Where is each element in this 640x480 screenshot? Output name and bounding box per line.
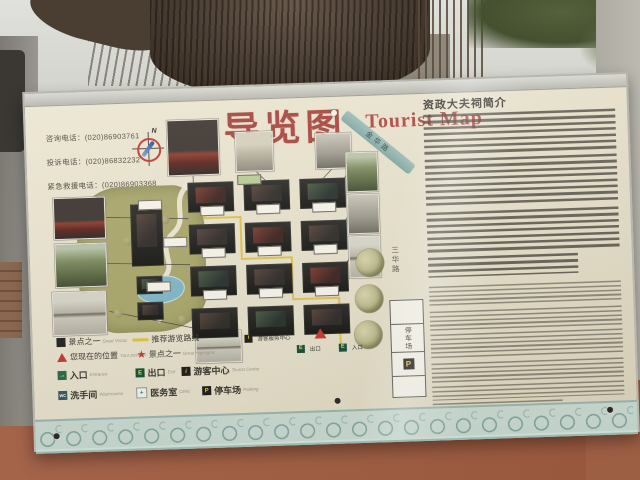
map-label-chip: [138, 200, 162, 211]
legend-tourist-center: i 游客中心Tourist Center: [181, 362, 260, 378]
entrance-icon: E: [339, 344, 347, 352]
info-icon: i: [181, 367, 190, 376]
route-line-icon: [132, 338, 148, 342]
map-label-chip: [259, 288, 283, 299]
road-sanhua-label: 三华路: [390, 246, 402, 275]
photo-inset: [236, 132, 273, 171]
map-exit-label: E 出口: [297, 344, 321, 353]
exit-icon: E: [297, 345, 305, 353]
photo-inset: [346, 152, 377, 191]
photo-inset: [54, 197, 105, 239]
map-label-chip: [256, 204, 280, 215]
tourist-map-sign: 导览图 Tourist Map 咨询电话：(020)86903761 投诉电话：…: [22, 72, 640, 452]
you-are-here-marker: [314, 328, 326, 338]
visitor-center-label: i 游客服务中心: [244, 333, 290, 343]
map-label-chip: [163, 237, 187, 248]
parking-lot-label: 停车场: [391, 324, 424, 353]
legend-exit: E 出口Exit: [135, 365, 175, 379]
legend-clinic: + 医务室Clinic: [136, 385, 190, 400]
legend-entrance: → 入口Entrance: [57, 367, 107, 382]
map-building-block: [137, 302, 164, 321]
parking-cell: [390, 300, 423, 325]
map-label-chip: [147, 281, 171, 292]
left-dark-post: [0, 50, 25, 152]
map-label-chip: [257, 246, 281, 257]
photo-scene: 导览图 Tourist Map 咨询电话：(020)86903761 投诉电话：…: [0, 0, 640, 480]
exit-icon: E: [135, 368, 144, 377]
photo-inset: [316, 133, 351, 168]
map-label-chip: [203, 289, 227, 300]
legend-route: 推荐游览路线: [132, 332, 199, 345]
intro-chinese-text: [423, 108, 620, 282]
parking-icon: P: [202, 386, 211, 395]
legend-parking: P 停车场Parking: [202, 382, 259, 397]
map-label-chip: [200, 206, 224, 217]
parking-cell: P: [392, 352, 425, 377]
map-label-chip: [201, 247, 225, 258]
photo-inset: [348, 194, 379, 233]
left-brick-patch: [0, 262, 22, 338]
photo-inset: [167, 120, 219, 176]
clinic-cross-icon: +: [136, 387, 147, 398]
map-building-block: [130, 204, 164, 267]
attraction-square-icon: [56, 338, 65, 347]
legend-attraction: 景点之一Great Vistas: [56, 335, 127, 348]
parking-strip: 停车场 P: [389, 299, 426, 398]
info-icon: i: [244, 335, 252, 343]
photo-inset: [55, 243, 106, 287]
star-icon: ★: [137, 350, 146, 359]
photo-inset: [53, 292, 106, 336]
parking-cell: [393, 376, 426, 395]
entrance-icon: →: [57, 371, 66, 380]
washroom-icon: WC: [58, 391, 67, 400]
map-building-block: [303, 303, 350, 335]
mounting-bolt: [335, 398, 341, 404]
map-label-chip-green: [237, 174, 261, 185]
map-label-chip: [315, 286, 339, 297]
map-label-chip: [312, 202, 336, 213]
legend-washroom: WC 洗手间Washrooms: [58, 387, 123, 402]
parking-icon: P: [403, 358, 414, 369]
map-label-chip: [313, 244, 337, 255]
intro-title: 资政大夫祠简介: [423, 94, 507, 113]
you-are-here-icon: [57, 353, 67, 362]
map-entrance-label: E 入口: [339, 343, 363, 352]
intro-english-text: [429, 280, 625, 416]
map-building-block: [247, 305, 294, 337]
